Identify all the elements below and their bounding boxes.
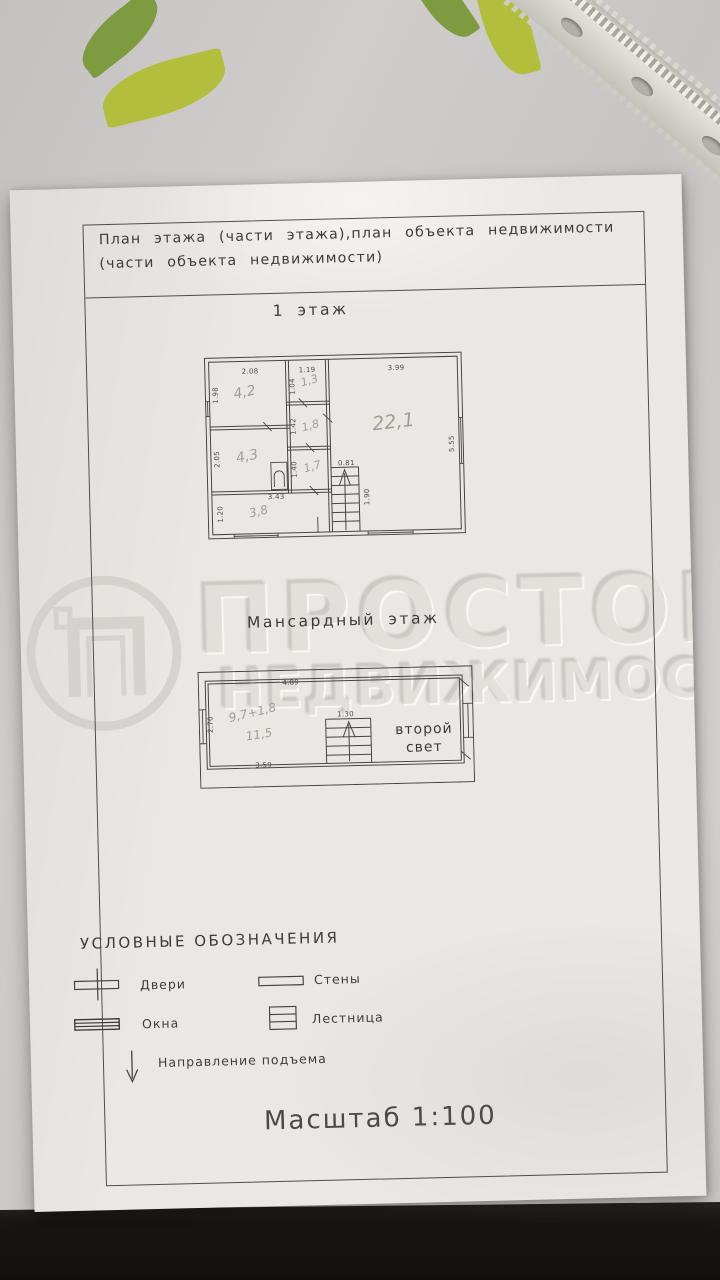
- dim-room6-height: 1.20: [216, 499, 227, 529]
- attic-void-label-line1: второй: [379, 720, 469, 738]
- paper-sheet: ПРОСТОР НЕДВИЖИМОСТЬ План этажа (части э…: [10, 174, 707, 1212]
- floor1-title: 1 этаж: [260, 300, 360, 320]
- sleeve-binder-hole-2: [628, 73, 656, 100]
- legend-label-windows: Окна: [142, 1015, 180, 1031]
- dark-table-edge: [0, 1200, 720, 1280]
- dim-attic-bottom: 3.59: [249, 761, 279, 770]
- dim-room1-height: 1.98: [211, 380, 222, 410]
- window-symbol-icon: [74, 1018, 120, 1031]
- wall-symbol-icon: [258, 975, 304, 986]
- sleeve-binder-hole-3: [699, 132, 720, 159]
- dim-attic-left: 2.70: [206, 709, 217, 739]
- dim-attic-width: 4.89: [276, 678, 306, 687]
- dim-room3-height: 5.55: [448, 428, 459, 458]
- dim-stairs-width: 0.81: [331, 459, 361, 468]
- attic-void-label-line2: свет: [379, 738, 469, 756]
- legend-label-walls: Стены: [314, 971, 361, 987]
- title-block-separator: [85, 284, 645, 299]
- legend-label-stairs: Лестница: [312, 1009, 384, 1026]
- dim-stairs-height: 1.90: [363, 482, 374, 512]
- legend-label-doors: Двери: [140, 976, 186, 992]
- dim-room1-width: 2.08: [235, 367, 265, 376]
- ascent-direction-arrow-icon: [125, 1049, 140, 1083]
- door-symbol-icon: [73, 968, 122, 1001]
- photo-floor-plan-document: ПРОСТОР НЕДВИЖИМОСТЬ План этажа (части э…: [0, 0, 720, 1280]
- dim-room4-height: 2.05: [213, 444, 224, 474]
- dim-attic-stairs: 1.30: [330, 710, 360, 719]
- dim-room3-width: 3.99: [381, 364, 411, 373]
- stairs-symbol-icon: [269, 1006, 298, 1031]
- leaf-decor-3: [409, 0, 481, 47]
- sleeve-binder-hole-1: [558, 14, 586, 41]
